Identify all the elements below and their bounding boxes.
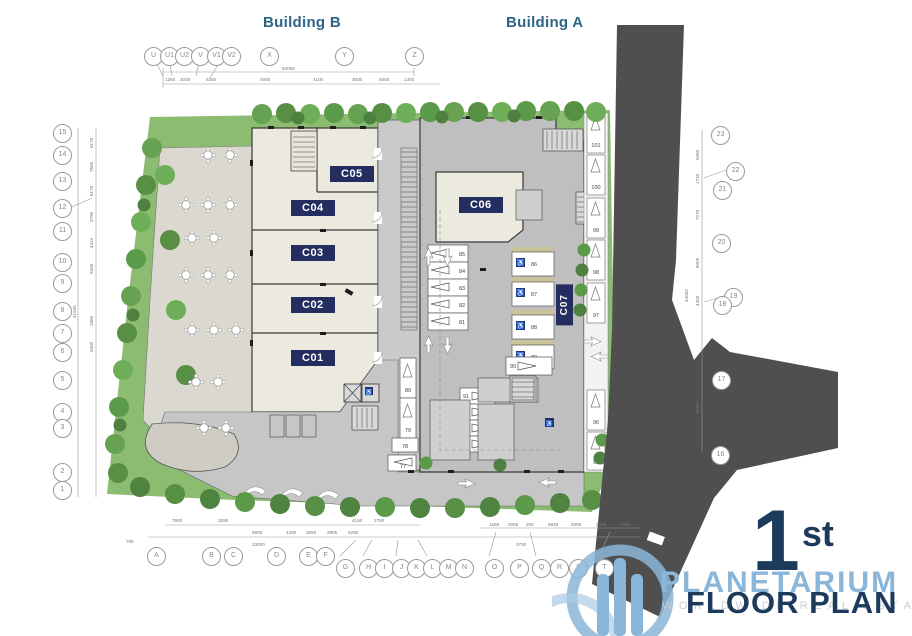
- svg-text:44000: 44000: [684, 289, 689, 302]
- wheelchair-icon: ♿: [546, 420, 554, 428]
- parking-number: 90: [510, 364, 516, 370]
- parking-number: 77: [400, 464, 406, 470]
- grid-bubble-12: 12: [53, 199, 72, 218]
- floor-plan-page: 101 100 99 98 97 96 95 85 84 83 82 81: [0, 0, 912, 636]
- parking-number: 78: [402, 444, 408, 450]
- svg-text:4424: 4424: [89, 237, 94, 248]
- unit-label-c07: C07: [556, 284, 573, 325]
- floor-number: 1st: [752, 498, 832, 584]
- svg-text:5905: 5905: [252, 530, 263, 535]
- building-b-title: Building B: [263, 14, 341, 31]
- grid-bubble-11: 11: [53, 222, 72, 241]
- parking-number: 99: [593, 228, 599, 234]
- svg-text:1300: 1300: [404, 77, 415, 82]
- grid-bubble-v2: V2: [222, 47, 241, 66]
- grid-bubble-y: Y: [335, 47, 354, 66]
- svg-text:3700: 3700: [516, 542, 527, 547]
- svg-text:4100: 4100: [313, 77, 324, 82]
- grid-bubble-13: 13: [53, 172, 72, 191]
- svg-text:6175: 6175: [89, 137, 94, 148]
- wheelchair-icon: ♿: [516, 258, 525, 267]
- grid-bubble-g: G: [336, 559, 355, 578]
- grid-bubble-p: P: [510, 559, 529, 578]
- grid-bubble-n: N: [455, 559, 474, 578]
- grid-bubble-23: 23: [711, 126, 730, 145]
- svg-text:795: 795: [126, 539, 134, 544]
- grid-bubble-8: 8: [53, 302, 72, 321]
- svg-text:6350: 6350: [206, 77, 217, 82]
- grid-bubble-16: 16: [711, 446, 730, 465]
- grid-bubble-10: 10: [53, 253, 72, 272]
- parking-number: 88: [531, 325, 537, 331]
- svg-text:2085: 2085: [571, 522, 582, 527]
- parking-number: 85: [459, 252, 465, 258]
- unit-label-c02: C02: [291, 297, 335, 313]
- svg-text:5305: 5305: [89, 263, 94, 274]
- svg-text:5300: 5300: [89, 341, 94, 352]
- grid-bubble-d: D: [267, 547, 286, 566]
- svg-text:1730: 1730: [695, 173, 700, 184]
- wheelchair-icon: ♿: [516, 288, 525, 297]
- parking-number: 100: [591, 185, 600, 191]
- floor-number-suffix: st: [802, 513, 834, 554]
- grid-bubble-7: 7: [53, 324, 72, 343]
- parking-number: 79: [405, 428, 411, 434]
- svg-text:2780: 2780: [374, 518, 385, 523]
- wheelchair-icon: ♿: [516, 321, 525, 330]
- unit-label-c04: C04: [291, 200, 335, 216]
- svg-text:6005: 6005: [695, 257, 700, 268]
- unit-label-c03: C03: [291, 245, 335, 261]
- svg-text:33000: 33000: [252, 542, 265, 547]
- grid-bubble-15: 15: [53, 124, 72, 143]
- svg-text:3030: 3030: [180, 77, 191, 82]
- grid-bubble-z: Z: [405, 47, 424, 66]
- grid-bubble-2: 2: [53, 463, 72, 482]
- svg-text:2865: 2865: [89, 315, 94, 326]
- parking-east-edge: 101 100 99 98 97 96 95: [584, 113, 608, 472]
- svg-text:7650: 7650: [89, 161, 94, 172]
- svg-text:7900: 7900: [172, 518, 183, 523]
- grid-bubble-21: 21: [713, 181, 732, 200]
- floor-number-digit: 1: [752, 493, 800, 589]
- grid-bubble-9: 9: [53, 274, 72, 293]
- svg-text:5450: 5450: [620, 522, 631, 527]
- grid-bubble-q: Q: [532, 559, 551, 578]
- parking-number: 80: [405, 388, 411, 394]
- parking-number: 86: [531, 262, 537, 268]
- svg-text:4150: 4150: [352, 518, 363, 523]
- parking-number: 84: [459, 269, 465, 275]
- svg-text:3290: 3290: [218, 518, 229, 523]
- grid-bubble-c: C: [224, 547, 243, 566]
- grid-bubble-1: 1: [53, 481, 72, 500]
- parking-number: 82: [459, 303, 465, 309]
- logo-bars: [597, 558, 643, 636]
- grid-bubble-18: 18: [713, 296, 732, 315]
- grid-bubble-20: 20: [712, 234, 731, 253]
- parking-number: 98: [593, 270, 599, 276]
- floor-plan-title: FLOOR PLAN: [686, 585, 898, 621]
- grid-bubble-x: X: [260, 47, 279, 66]
- svg-text:5845: 5845: [548, 522, 559, 527]
- grid-bubble-a: A: [147, 547, 166, 566]
- grid-bubble-5: 5: [53, 371, 72, 390]
- svg-text:4900: 4900: [260, 77, 271, 82]
- grid-bubble-17: 17: [712, 371, 731, 390]
- svg-text:7270: 7270: [695, 209, 700, 220]
- svg-text:5600: 5600: [379, 77, 390, 82]
- unit-label-c05: C05: [330, 166, 374, 182]
- grid-bubble-14: 14: [53, 146, 72, 165]
- building-b-stairs: [291, 131, 317, 171]
- grid-bubble-3: 3: [53, 419, 72, 438]
- parking-number: 81: [459, 320, 465, 326]
- svg-text:1350: 1350: [165, 77, 176, 82]
- grid-bubble-o: O: [485, 559, 504, 578]
- terrace: [143, 146, 252, 452]
- wheelchair-icon: ♿: [365, 388, 373, 396]
- svg-text:2650: 2650: [306, 530, 317, 535]
- svg-text:9460: 9460: [695, 149, 700, 160]
- parking-number: 87: [531, 292, 537, 298]
- parking-number: 101: [591, 143, 600, 149]
- svg-text:16920: 16920: [695, 401, 700, 414]
- svg-text:4400: 4400: [286, 530, 297, 535]
- parking-number: 91: [463, 394, 469, 400]
- svg-text:6175: 6175: [89, 185, 94, 196]
- svg-text:1555: 1555: [489, 522, 500, 527]
- svg-text:4790: 4790: [89, 211, 94, 222]
- unit-label-c06: C06: [459, 197, 503, 213]
- grid-bubble-22: 22: [726, 162, 745, 181]
- svg-text:41505: 41505: [72, 305, 77, 318]
- building-a-title: Building A: [506, 14, 583, 31]
- svg-text:2905: 2905: [327, 530, 338, 535]
- svg-text:3400: 3400: [596, 522, 607, 527]
- svg-text:6295: 6295: [348, 530, 359, 535]
- svg-text:2655: 2655: [508, 522, 519, 527]
- svg-text:3000: 3000: [352, 77, 363, 82]
- svg-text:4400: 4400: [695, 295, 700, 306]
- unit-label-c01: C01: [291, 350, 335, 366]
- svg-text:250: 250: [526, 522, 534, 527]
- parking-number: 83: [459, 286, 465, 292]
- parking-number: 96: [593, 420, 599, 426]
- grid-bubble-b: B: [202, 547, 221, 566]
- svg-text:54055: 54055: [282, 66, 295, 71]
- grid-bubble-f: F: [316, 547, 335, 566]
- parking-number: 97: [593, 313, 599, 319]
- grid-bubble-6: 6: [53, 343, 72, 362]
